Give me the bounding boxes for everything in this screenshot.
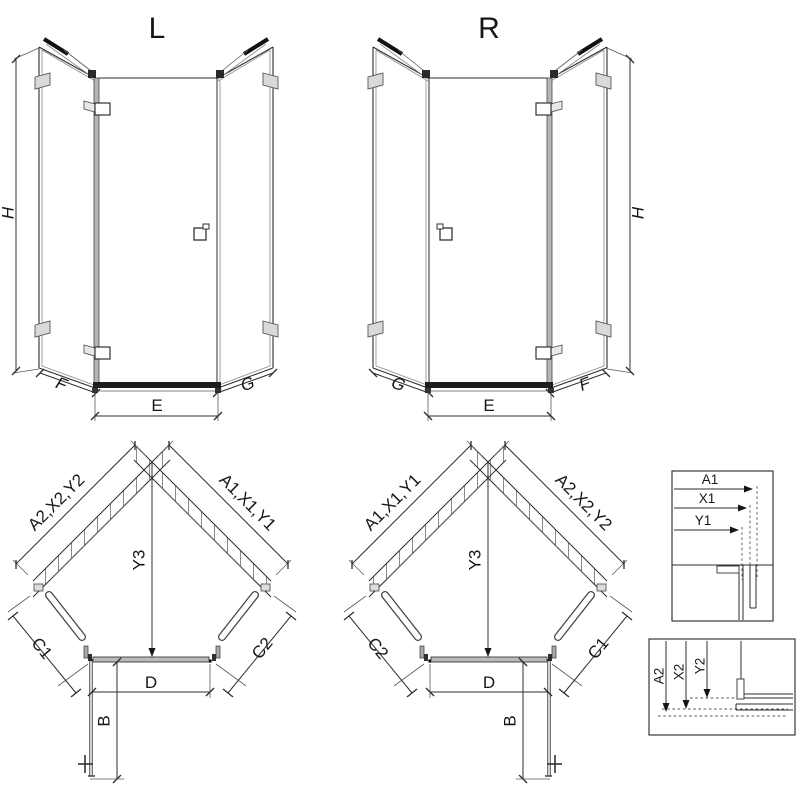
plan-right-depth-label: Y3 <box>465 550 484 571</box>
elevation-right-drawing <box>368 39 634 421</box>
shower-enclosure-technical-drawing: L H F E G R G E F H A2,X2,Y2 A1,X1,Y1 Y3… <box>0 0 800 800</box>
plan-left-wall-left-label: A2,X2,Y2 <box>24 470 88 534</box>
detail-horizontal-view: A1 X1 Y1 <box>672 471 773 621</box>
detail-bottom-a2-label: A2 <box>652 668 667 685</box>
plan-right-drawing <box>344 441 632 783</box>
dim-label-g-right: G <box>389 373 408 395</box>
plan-left-swing-label: B <box>94 715 113 726</box>
dim-label-height-left: H <box>0 206 17 219</box>
elevation-right-view: R G E F H <box>368 12 647 421</box>
detail-top-x1-label: X1 <box>699 491 716 506</box>
elevation-left-title: L <box>149 12 166 45</box>
detail-bottom-y2-label: Y2 <box>693 658 708 675</box>
dim-label-height-right: H <box>628 206 647 219</box>
dim-label-f-right: F <box>577 373 595 395</box>
dim-label-e-right: E <box>483 396 494 415</box>
plan-left-view: A2,X2,Y2 A1,X1,Y1 Y3 C1 C2 D B <box>8 441 296 783</box>
dim-label-g-left: G <box>238 373 257 395</box>
plan-right-view: A1,X1,Y1 A2,X2,Y2 Y3 C2 C1 D B <box>344 441 632 783</box>
elevation-right-title: R <box>478 12 500 45</box>
plan-right-swing-label: B <box>500 715 519 726</box>
elevation-left-drawing <box>12 39 278 421</box>
detail-top-a1-label: A1 <box>702 472 719 487</box>
plan-left-wall-right-label: A1,X1,Y1 <box>216 470 280 534</box>
plan-right-front-label: D <box>483 673 495 692</box>
elevation-left-view: L H F E G <box>0 12 278 421</box>
plan-left-front-label: D <box>145 673 157 692</box>
plan-right-wall-left-label: A1,X1,Y1 <box>360 470 424 534</box>
dim-label-e-left: E <box>151 396 162 415</box>
dim-label-f-left: F <box>53 373 71 395</box>
detail-top-y1-label: Y1 <box>695 513 712 528</box>
detail-vertical-view: A2 X2 Y2 <box>649 639 795 735</box>
plan-left-depth-label: Y3 <box>129 550 148 571</box>
plan-left-drawing <box>8 441 296 783</box>
detail-bottom-x2-label: X2 <box>672 664 687 681</box>
plan-right-wall-right-label: A2,X2,Y2 <box>552 470 616 534</box>
